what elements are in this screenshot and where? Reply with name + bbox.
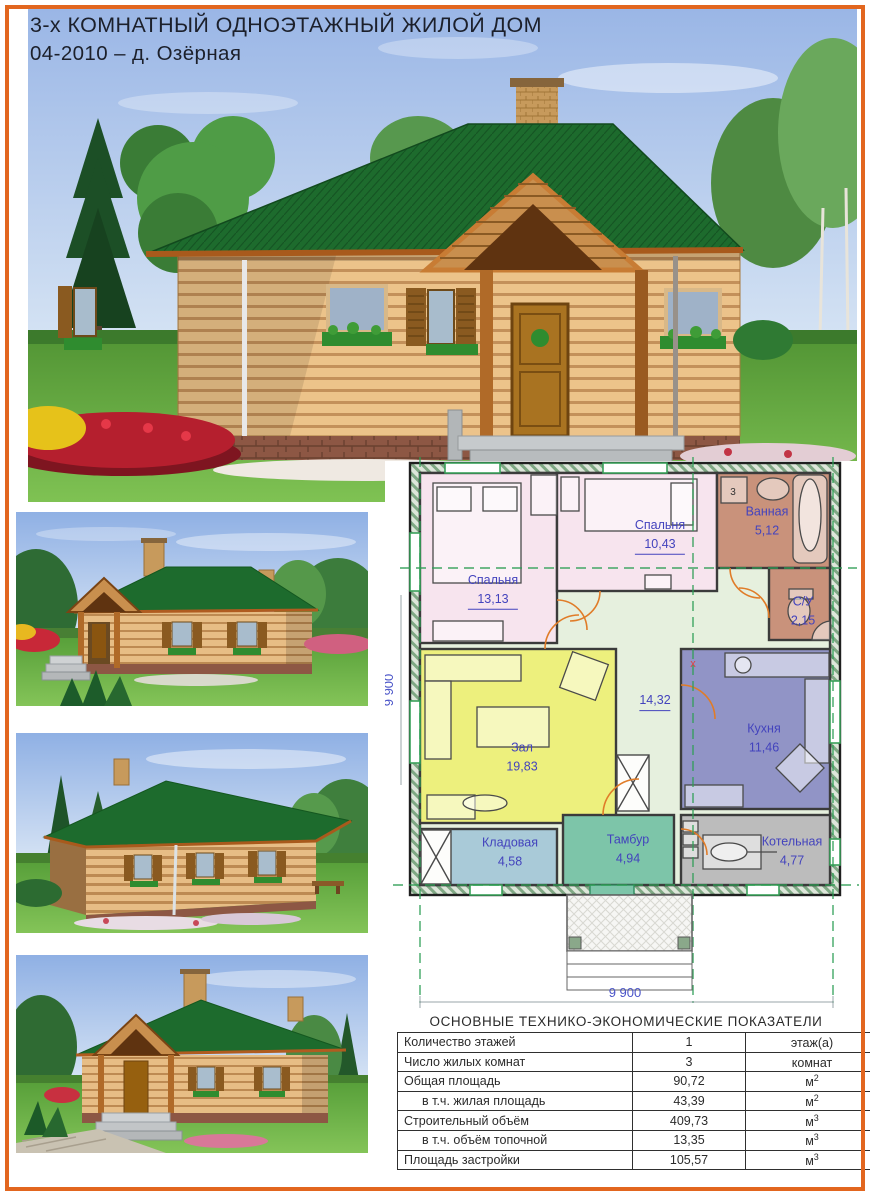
washer-marker: 3 — [730, 487, 736, 498]
spec-label: в т.ч. объём топочной — [422, 1133, 547, 1147]
spec-value: 90,72 — [673, 1074, 704, 1088]
window-left — [322, 286, 392, 346]
spec-value: 43,39 — [673, 1094, 704, 1108]
spec-table-row: Площадь застройки 105,57 м3 — [398, 1150, 870, 1170]
spec-value: 3 — [686, 1055, 693, 1069]
project-sheet: 3-х КОМНАТНЫЙ ОДНОЭТАЖНЫЙ ЖИЛОЙ ДОМ 04-2… — [0, 0, 870, 1196]
spec-value: 13,35 — [673, 1133, 704, 1147]
spec-unit: м — [805, 1095, 814, 1109]
window — [227, 622, 267, 655]
spec-table-row: Число жилых комнат 3 комнат — [398, 1052, 870, 1072]
room-label-bedroom-2: Спальня 10,43 — [635, 516, 685, 555]
spec-label: Площадь застройки — [404, 1153, 520, 1167]
window-shuttered — [406, 288, 478, 355]
dim-left: 9 900 — [385, 674, 396, 707]
page-subtitle: 04-2010 – д. Озёрная — [30, 40, 542, 69]
room-label-wc: С/У 2,15 — [791, 592, 815, 630]
spec-label: Общая площадь — [404, 1074, 501, 1088]
spec-table-title: ОСНОВНЫЕ ТЕХНИКО-ЭКОНОМИЧЕСКИЕ ПОКАЗАТЕЛ… — [397, 1014, 855, 1029]
page-title: 3-х КОМНАТНЫЙ ОДНОЭТАЖНЫЙ ЖИЛОЙ ДОМ — [30, 10, 542, 40]
room-label-living: Зал 19,83 — [506, 738, 537, 776]
spec-table-row: в т.ч. объём топочной 13,35 м3 — [398, 1130, 870, 1150]
spec-value: 409,73 — [670, 1114, 708, 1128]
spec-unit: этаж(а) — [791, 1036, 833, 1050]
room-label-vestibule: Тамбур 4,94 — [607, 830, 649, 868]
main-house-render-image — [28, 8, 857, 502]
window-far-left — [58, 286, 102, 350]
floor-plan-drawing: 9 900 9 900 3 х — [385, 455, 865, 1011]
downspout — [242, 260, 247, 436]
spec-value: 105,57 — [670, 1153, 708, 1167]
window — [188, 1067, 224, 1097]
spec-label: в т.ч. жилая площадь — [422, 1094, 545, 1108]
title-block: 3-х КОМНАТНЫЙ ОДНОЭТАЖНЫЙ ЖИЛОЙ ДОМ 04-2… — [30, 10, 542, 69]
floor-plan-panel: 9 900 9 900 3 х Спальня 13,13 Спальня 10… — [385, 455, 865, 1011]
spec-unit: м — [805, 1115, 814, 1129]
spec-table-row: в т.ч. жилая площадь 43,39 м2 — [398, 1091, 870, 1111]
porch-post — [480, 270, 493, 436]
room-label-hall: 14,32 — [639, 691, 670, 711]
spec-label: Число жилых комнат — [404, 1055, 525, 1069]
room-label-bedroom-1: Спальня 13,13 — [468, 571, 518, 610]
spec-table-row: Общая площадь 90,72 м2 — [398, 1072, 870, 1092]
entry-door — [512, 304, 568, 436]
spec-table-row: Количество этажей 1 этаж(а) — [398, 1033, 870, 1053]
downspout — [174, 845, 176, 915]
spec-table: Количество этажей 1 этаж(а) Число жилых … — [397, 1032, 870, 1170]
dim-bottom: 9 900 — [609, 985, 642, 1000]
room-label-kitchen: Кухня 11,46 — [747, 719, 780, 757]
spec-unit: комнат — [792, 1056, 832, 1070]
spec-unit: м — [805, 1154, 814, 1168]
window — [162, 622, 202, 655]
room-label-boiler: Котельная 4,77 — [762, 832, 823, 870]
porch — [567, 895, 692, 990]
entrance-door-opening — [590, 885, 634, 895]
spec-unit: м — [805, 1134, 814, 1148]
side-view-render-2 — [16, 733, 368, 933]
room-label-bathroom: Ванная 5,12 — [746, 502, 789, 540]
spec-table-row: Строительный объём 409,73 м3 — [398, 1111, 870, 1131]
spec-label: Строительный объём — [404, 1114, 529, 1128]
stove-marker: х — [690, 658, 696, 670]
window-right — [660, 290, 726, 349]
spec-table-block: ОСНОВНЫЕ ТЕХНИКО-ЭКОНОМИЧЕСКИЕ ПОКАЗАТЕЛ… — [397, 1014, 855, 1170]
spec-unit: м — [805, 1076, 814, 1090]
side-view-render-1 — [16, 512, 368, 706]
spec-label: Количество этажей — [404, 1035, 516, 1049]
porch-post — [635, 270, 648, 436]
window — [254, 1067, 290, 1097]
side-view-render-1-image — [16, 512, 368, 706]
spec-value: 1 — [686, 1035, 693, 1049]
side-view-render-3 — [16, 955, 368, 1153]
bench — [312, 881, 344, 886]
main-house-render — [28, 8, 857, 502]
side-view-render-2-image — [16, 733, 368, 933]
room-label-storage: Кладовая 4,58 — [482, 833, 538, 871]
downspout — [673, 256, 678, 436]
side-view-render-3-image — [16, 955, 368, 1153]
